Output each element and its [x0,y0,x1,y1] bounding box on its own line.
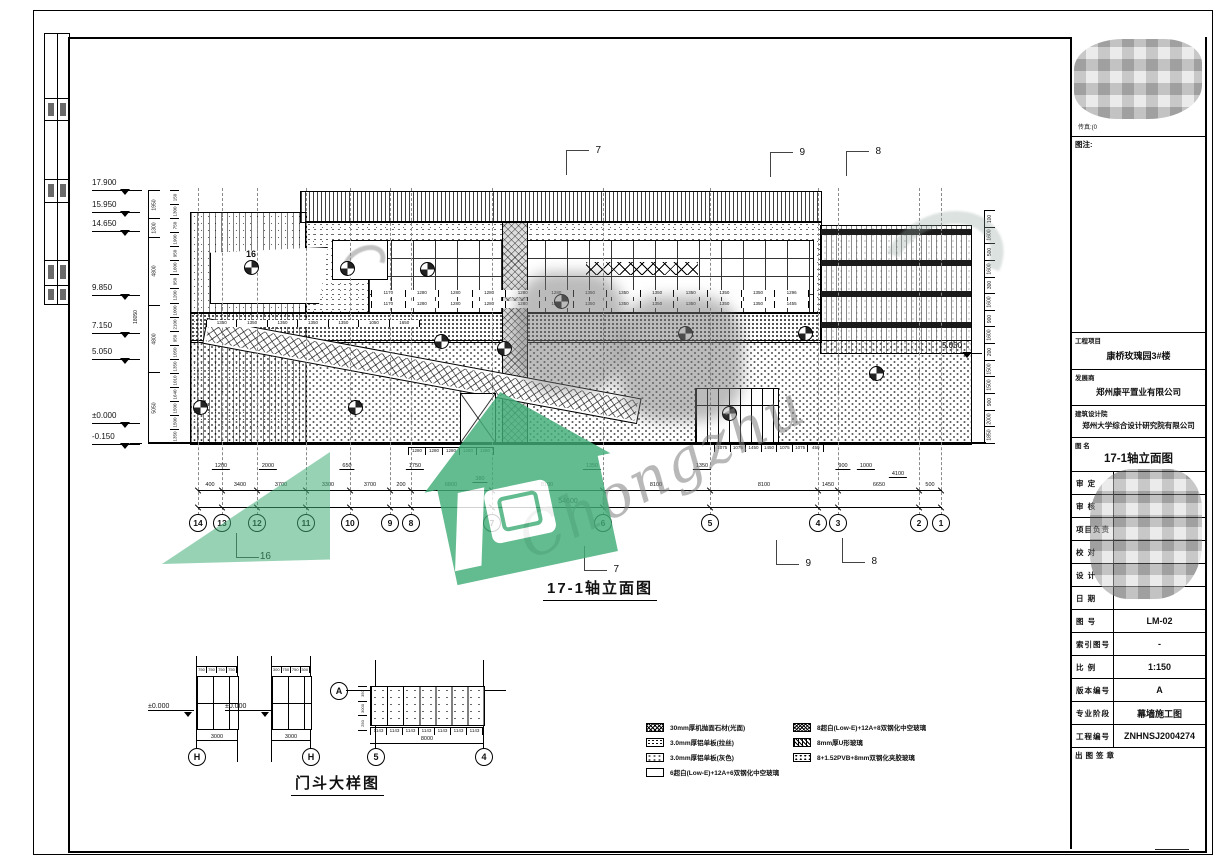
dim-label: 1200 [212,463,230,470]
dd-side-dims: 3503000250 [358,686,367,731]
section-marker: 8 [846,151,869,176]
left-main-chain: 19501300480048005050 [148,190,160,444]
legend-label: 8超白(Low-E)+12A+8双钢化中空玻璃 [817,722,926,732]
info-label: 索引图号 [1072,633,1114,655]
detail-callout [244,260,259,275]
info-label: 专业阶段 [1072,702,1114,724]
legend-swatch [646,723,664,732]
legend-swatch [646,738,664,747]
legend-item: 3.0mm厚铝单板(灰色) [646,752,779,762]
legend-item: 3.0mm厚铝单板(拉丝) [646,737,779,747]
detail-callout [420,262,435,277]
dim-label: 3400 [233,482,247,488]
info-label: 版本编号 [1072,679,1114,701]
dd-bubble-h1: H [188,748,206,766]
section-marker: 9 [770,152,793,177]
dd-dim-line [196,740,237,741]
dd-p2-top-dims: 300750750300 [271,666,310,673]
detail-callout [434,334,449,349]
dim-label: 200 [395,482,406,488]
dd-bubble-4: 4 [475,748,493,766]
project-value: 康桥玫瑰园3#楼 [1072,333,1205,369]
legend-right: 8超白(Low-E)+12A+8双钢化中空玻璃 8mm厚U形玻璃 8+1.52P… [793,722,926,762]
dim-label: 3700 [363,482,377,488]
info-label: 比 例 [1072,656,1114,678]
dd-bubble-5: 5 [367,748,385,766]
axis-bubble: 3 [829,514,847,532]
note-label: 图注: [1075,139,1093,150]
axis-bubble: 1 [932,514,950,532]
watermark-blur-blob [515,272,625,392]
section-marker: 8 [842,538,865,563]
axis-bubble: 5 [701,514,719,532]
dd-bubble-h2: H [302,748,320,766]
legend-swatch [646,768,664,777]
info-value: ZNHNSJ2004274 [1114,725,1205,747]
dim-label: 6650 [872,482,886,488]
tb-developer-row: 发展商 郑州康平置业有限公司 [1072,370,1205,406]
dim-label: 1450 [821,482,835,488]
detail-callout [497,341,512,356]
tb-info-row: 版本编号 A [1072,679,1205,702]
legend-item: 8+1.52PVB+8mm双钢化夹胶玻璃 [793,752,926,762]
axis-bubble: 4 [809,514,827,532]
detail-callout [869,366,884,381]
detail-callout [340,261,355,276]
dim-label: 500 [924,482,935,488]
tb-info-row: 索引图号 - [1072,633,1205,656]
info-value: 幕墙施工图 [1114,702,1205,724]
section-marker: 7 [566,150,589,175]
info-value: - [1114,633,1205,655]
legend-label: 6超白(Low-E)+12A+6双钢化中空玻璃 [670,767,779,777]
dd-dim-line [370,743,483,744]
company-logo-pixelated [1074,39,1202,119]
info-value: LM-02 [1114,610,1205,632]
dwgname-value: 17-1轴立面图 [1072,438,1205,471]
level-marker-right: 5.050 [942,341,982,354]
dd-wide-panel [370,686,485,726]
detail-callout [798,326,813,341]
left-total-chain: 18050 [130,190,142,444]
legend-label: 30mm厚机抛面石材(光面) [670,722,745,732]
dim-label: 400 [204,482,215,488]
dim-label: 8100 [757,482,771,488]
tb-info-row: 图 号 LM-02 [1072,610,1205,633]
dd-level-2: ±0.000 [225,703,271,711]
dim-label: 2000 [259,463,277,470]
canopy-panel [210,247,334,304]
legend-label: 3.0mm厚铝单板(拉丝) [670,737,734,747]
tb-info-row: 比 例 1:150 [1072,656,1205,679]
drawing-sheet: 16 17.900 15.950 14.650 9.850 7.150 5.05… [0,0,1217,863]
fax-line: 传真:(0 [1078,122,1097,131]
dim-label: 650 [339,463,354,470]
legend-label: 8mm厚U形玻璃 [817,737,863,747]
legend-label: 3.0mm厚铝单板(灰色) [670,752,734,762]
section-marker: 9 [776,540,799,565]
legend-left: 30mm厚机抛面石材(光面) 3.0mm厚铝单板(拉丝) 3.0mm厚铝单板(灰… [646,722,779,777]
legend-swatch [793,753,811,762]
tb-dwgname-row: 图 名 17-1轴立面图 [1072,438,1205,472]
legend-swatch [646,753,664,762]
axis-bubble: 9 [381,514,399,532]
dd-wide-total: 8000 [420,736,434,742]
axis-bubble: 2 [910,514,928,532]
tb-note-area: 图注: [1072,137,1205,333]
axis-bubble: 8 [402,514,420,532]
legend-item: 6超白(Low-E)+12A+6双钢化中空玻璃 [646,767,779,777]
title-block: 传真:(0 图注: 工程项目 康桥玫瑰园3#楼 发展商 郑州康平置业有限公司 建… [1070,37,1205,849]
dd-panel-2 [271,676,312,730]
dim-label: 900 [835,463,850,470]
axis-bubble: 14 [189,514,207,532]
legend-item: 30mm厚机抛面石材(光面) [646,722,779,732]
detail-callout [193,400,208,415]
info-value: A [1114,679,1205,701]
designer-value: 郑州大学综合设计研究院有限公司 [1072,406,1205,437]
tb-seal-row: 出图签章 [1072,748,1205,848]
signatures-pixelated [1090,469,1202,599]
legend-swatch [793,723,811,732]
dim-label: 4100 [889,471,907,478]
legend-item: 8超白(Low-E)+12A+8双钢化中空玻璃 [793,722,926,732]
tb-logo-area: 传真:(0 [1072,37,1205,137]
tb-info-row: 工程编号 ZNHNSJ2004274 [1072,725,1205,748]
info-label: 工程编号 [1072,725,1114,747]
elevation-title: 17-1轴立面图 [543,577,657,601]
developer-value: 郑州康平置业有限公司 [1072,370,1205,405]
signature-strip [44,33,70,305]
legend-label: 8+1.52PVB+8mm双钢化夹胶玻璃 [817,752,915,762]
dim-label: 1000 [857,463,875,470]
dd-p1-top-dims: 750750750750 [196,666,237,673]
dd-bubble-a: A [330,682,348,700]
parapet-band-hatch [300,191,822,223]
dd-dim-line [271,740,310,741]
canopy-swoosh-panel [332,240,388,280]
stair-dim-row: 1350135013501350135010501650 [206,320,420,327]
axis-bubble: 10 [341,514,359,532]
dd-level-1: ±0.000 [148,703,194,711]
info-value: 1:150 [1114,656,1205,678]
detail-callout [348,400,363,415]
inner-section-label: 16 [246,249,256,259]
tb-designer-row: 建筑设计院 郑州大学综合设计研究院有限公司 [1072,406,1205,438]
legend-item: 8mm厚U形玻璃 [793,737,926,747]
left-inner-chain: 1501300750190095016009501200100021009501… [170,190,179,444]
info-label: 图 号 [1072,610,1114,632]
tb-info-row: 专业阶段 幕墙施工图 [1072,702,1205,725]
tb-project-row: 工程项目 康桥玫瑰园3#楼 [1072,333,1205,370]
tb-info-rows: 图 号 LM-02 索引图号 - 比 例 1:150 版本编号 A [1072,610,1205,748]
legend-swatch [793,738,811,747]
door-detail-title: 门斗大样图 [291,772,384,796]
dd-wide-bottom-dims: 1143114311431143114311431143 [370,727,483,735]
seal-label: 出图签章 [1075,750,1117,761]
